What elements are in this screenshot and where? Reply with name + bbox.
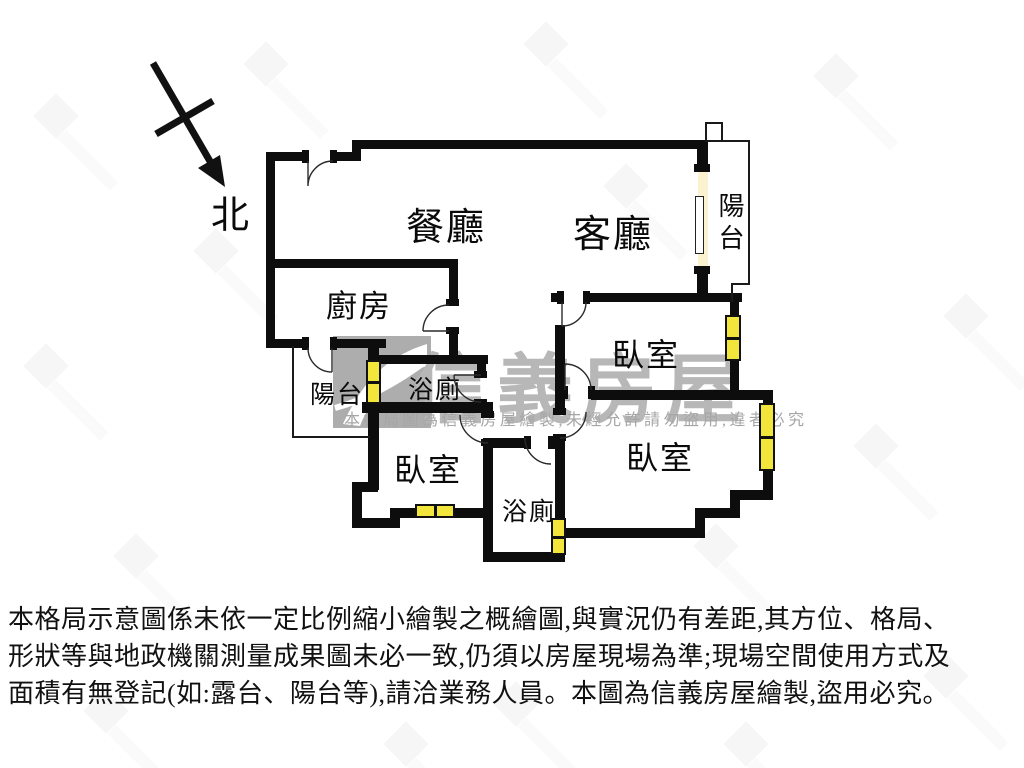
- floorplan-image: 信義房屋 本格局圖為信義房屋繪製,未經允許請勿盜用,違者必究 北 餐廳 客廳 陽…: [0, 0, 1024, 768]
- room-label-bedroom-left: 臥室: [394, 445, 462, 491]
- room-label-bedroom-right: 臥室: [626, 433, 694, 479]
- room-label-bath-upper: 浴廁: [408, 370, 462, 406]
- room-label-living: 客廳: [573, 203, 653, 258]
- room-label-dining: 餐廳: [406, 196, 486, 251]
- room-label-balcony-right: 陽台: [711, 192, 748, 256]
- compass-north-label: 北: [211, 184, 251, 239]
- room-labels: 北 餐廳 客廳 陽台 廚房 陽台 浴廁 臥室 臥室 臥室 浴廁: [0, 0, 1024, 768]
- room-label-bedroom-mid: 臥室: [612, 330, 680, 376]
- room-label-kitchen: 廚房: [326, 281, 392, 326]
- room-label-bath-lower: 浴廁: [502, 492, 556, 528]
- room-label-balcony-left: 陽台: [310, 375, 364, 411]
